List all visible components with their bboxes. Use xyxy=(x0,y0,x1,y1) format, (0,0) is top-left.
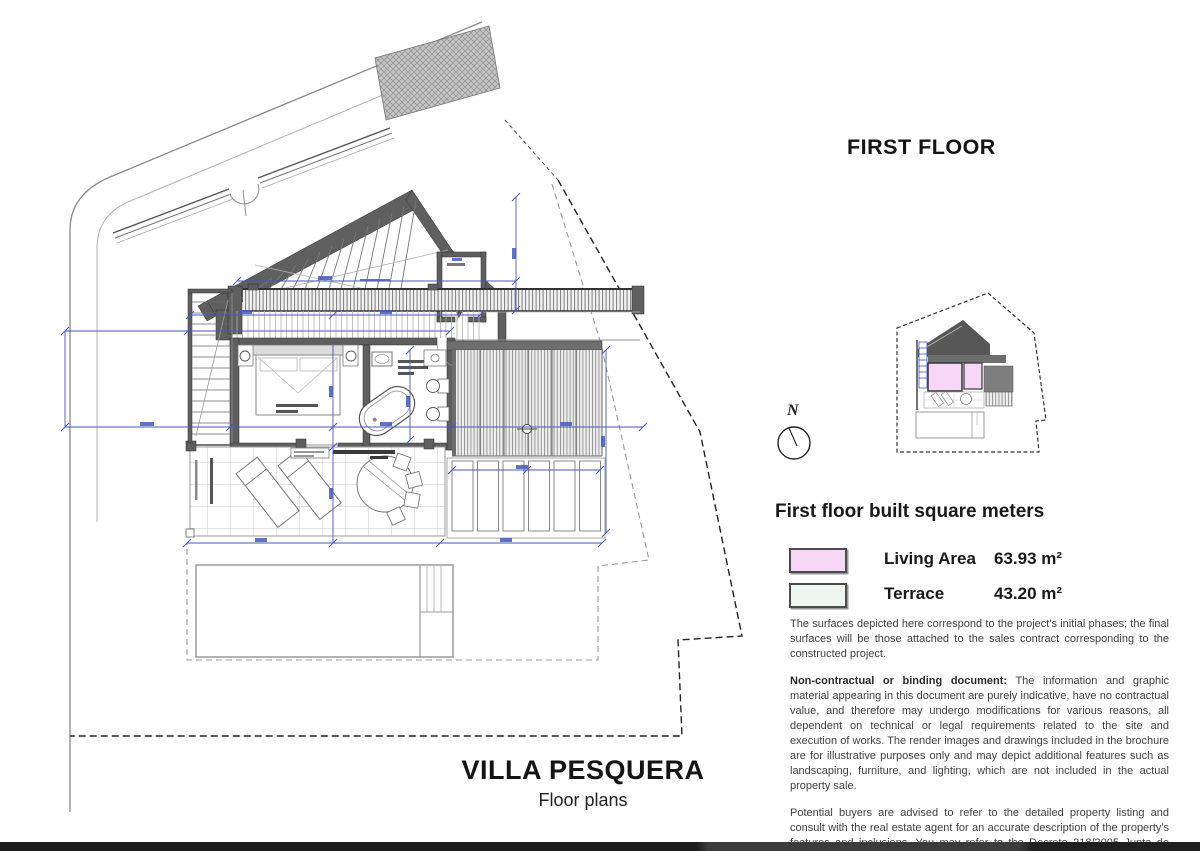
footer-block: VILLA PESQUERA Floor plans xyxy=(403,755,763,811)
bottom-edge-bar xyxy=(0,842,1200,851)
room-label-smudge xyxy=(398,360,424,363)
legend-label-living-area: Living Area xyxy=(884,549,976,569)
disclaimer-non-contractual: Non-contractual or binding document: The… xyxy=(790,674,1169,794)
legend-value-terrace: 43.20 m² xyxy=(994,584,1062,604)
floor-plan-drawing xyxy=(0,0,760,820)
legend-value-living-area: 63.93 m² xyxy=(994,549,1062,569)
north-compass: N xyxy=(770,395,825,470)
mini-gray-roof xyxy=(984,366,1013,392)
driveway-hatch xyxy=(375,26,500,120)
compass-label: N xyxy=(786,402,800,419)
legend-label-terrace: Terrace xyxy=(884,584,944,604)
room-label-smudge xyxy=(276,404,318,407)
terrace xyxy=(186,439,445,537)
disclaimer-surfaces: The surfaces depicted here correspond to… xyxy=(790,617,1169,662)
legend-swatch-living-area xyxy=(789,548,847,573)
mini-site-plan xyxy=(880,288,1055,460)
project-title: VILLA PESQUERA xyxy=(403,755,763,786)
right-roof xyxy=(447,341,602,456)
bed-headboard xyxy=(252,345,344,355)
disclaimer-lead: Non-contractual or binding document: xyxy=(790,675,1007,687)
legend-title: First floor built square meters xyxy=(775,501,1044,523)
mini-slats xyxy=(986,392,1012,406)
terrace-label-smudge xyxy=(333,450,395,454)
project-subtitle: Floor plans xyxy=(403,790,763,811)
disclaimer-block: The surfaces depicted here correspond to… xyxy=(790,617,1169,851)
mini-living-area xyxy=(928,363,962,391)
mini-pool xyxy=(916,412,984,438)
legend-swatch-terrace xyxy=(789,583,847,608)
floor-title: FIRST FLOOR xyxy=(847,135,996,160)
bedroom xyxy=(230,338,455,450)
brochure-page: FIRST FLOOR N First xyxy=(0,0,1200,851)
pool xyxy=(196,565,453,657)
